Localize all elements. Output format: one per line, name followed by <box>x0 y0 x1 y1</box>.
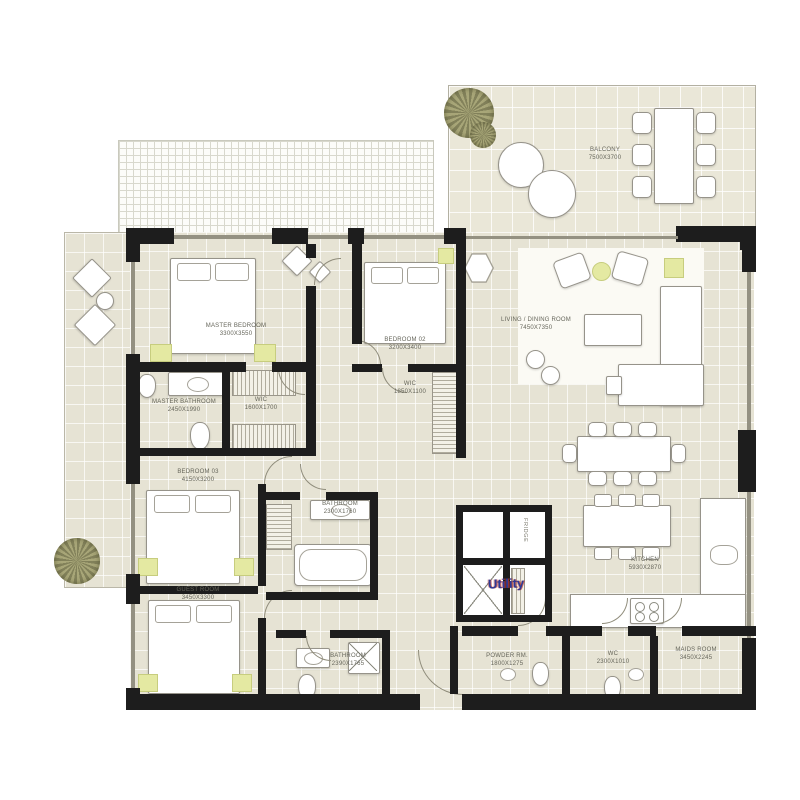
wall <box>628 626 656 636</box>
room-name: POWDER RM. <box>486 653 528 659</box>
chair <box>613 422 632 437</box>
nightstand <box>138 558 158 576</box>
wic-bedroom02-label: WIC 1850X1100 <box>384 380 436 396</box>
wall <box>545 505 552 622</box>
sofa-arm <box>606 376 622 395</box>
wall <box>126 354 140 484</box>
room-name: WIC <box>404 381 416 387</box>
window <box>308 235 348 239</box>
bathroom-lower-label: BATHROOM 2390X1765 <box>318 652 378 668</box>
room-dims: 7500X3700 <box>589 155 622 161</box>
nightstand <box>234 558 254 576</box>
dining-table <box>577 436 671 472</box>
chair <box>613 471 632 486</box>
master-bedroom-label: MASTER BEDROOM 3300X3550 <box>186 322 286 338</box>
balcony-label: BALCONY 7500X3700 <box>560 146 650 162</box>
window <box>747 272 751 430</box>
window <box>131 484 135 574</box>
pillow <box>155 605 191 623</box>
wall <box>348 228 364 244</box>
room-dims: 1850X1100 <box>394 389 426 395</box>
room-name: MAIDS ROOM <box>675 647 716 653</box>
vanity-counter <box>168 372 224 396</box>
chair <box>638 422 657 437</box>
room-name: BATHROOM <box>330 653 366 659</box>
wall <box>456 244 466 458</box>
guest-room-label: GUEST ROOM 3450X3300 <box>158 586 238 602</box>
floor-plan: FRIDGE Utility <box>0 0 800 800</box>
pillow <box>407 267 439 284</box>
wall <box>258 484 266 586</box>
coffee-table <box>584 314 642 346</box>
chair <box>638 471 657 486</box>
chair <box>696 144 716 166</box>
window-sliding-door <box>466 236 678 239</box>
nightstand <box>138 674 158 692</box>
wc-label: WC 2300X1010 <box>592 650 634 666</box>
bathtub-icon <box>294 544 372 586</box>
room-name: MASTER BEDROOM <box>206 323 266 329</box>
room-dims: 1800X1275 <box>491 661 524 667</box>
pouf <box>664 258 684 278</box>
bedroom02-label: BEDROOM 02 3200X3400 <box>362 336 448 352</box>
plant-icon <box>470 122 496 148</box>
fridge-label: FRIDGE <box>522 518 528 542</box>
room-dims: 3300X3550 <box>220 331 253 337</box>
pillow <box>215 263 249 281</box>
sink-icon <box>710 545 738 565</box>
chair <box>696 176 716 198</box>
stool <box>594 494 612 507</box>
wall <box>682 626 756 636</box>
wall <box>306 244 316 258</box>
sink-icon <box>628 668 644 681</box>
side-table <box>541 366 560 385</box>
pillow <box>154 495 190 513</box>
pillow <box>371 267 403 284</box>
window <box>174 235 272 239</box>
living-dining-label: LIVING / DINING ROOM 7450X7350 <box>488 316 584 332</box>
balcony-round-table <box>528 170 576 218</box>
room-dims: 3200X3400 <box>389 345 422 351</box>
room-dims: 2300X1010 <box>597 659 630 665</box>
room-dims: 3450X2245 <box>680 655 713 661</box>
wall <box>134 448 316 456</box>
room-dims: 3450X3300 <box>182 595 215 601</box>
wall <box>382 630 390 710</box>
wall <box>546 626 602 636</box>
bedroom03-bed <box>146 490 240 584</box>
side-table <box>526 350 545 369</box>
room-name: GUEST ROOM <box>177 587 220 593</box>
room-dims: 2390X1765 <box>332 661 365 667</box>
wall <box>266 592 378 600</box>
room-name: BATHROOM <box>322 501 358 507</box>
wall <box>126 244 140 262</box>
window <box>131 604 135 688</box>
window <box>747 492 751 638</box>
maids-room-label: MAIDS ROOM 3450X2245 <box>656 646 736 662</box>
utility-label: Utility <box>488 575 525 591</box>
wall <box>462 694 756 710</box>
wall <box>742 248 756 272</box>
linen-closet <box>266 504 292 550</box>
wall <box>738 430 756 492</box>
wall <box>444 228 466 244</box>
stool <box>618 494 636 507</box>
kitchen-island <box>583 505 671 547</box>
chair <box>632 176 652 198</box>
chair <box>588 471 607 486</box>
wall <box>134 362 246 372</box>
room-dims: 7450X7350 <box>520 325 553 331</box>
bathroom-upper-label: BATHROOM 2300X1760 <box>308 500 372 516</box>
chair <box>588 422 607 437</box>
bedroom03-label: BEDROOM 03 4150X3200 <box>156 468 240 484</box>
room-dims: 5930X2870 <box>629 565 662 571</box>
master-bed <box>170 258 256 354</box>
chair <box>696 112 716 134</box>
pillow <box>195 495 231 513</box>
master-bathroom-label: MASTER BATHROOM 2450X1990 <box>140 398 228 414</box>
wall <box>126 228 174 244</box>
room-name: WC <box>608 651 618 657</box>
wall <box>126 694 420 710</box>
toilet-icon <box>190 422 210 450</box>
wall <box>258 618 266 710</box>
wic-master-label: WIC 1600X1700 <box>238 396 284 412</box>
chair <box>632 112 652 134</box>
pouf <box>592 262 611 281</box>
wall <box>276 630 306 638</box>
room-name: BEDROOM 03 <box>177 469 218 475</box>
plant-icon <box>54 538 100 584</box>
room-name: BEDROOM 02 <box>384 337 425 343</box>
room-name: LIVING / DINING ROOM <box>501 317 571 323</box>
room-dims: 2300X1760 <box>324 509 357 515</box>
stool <box>642 494 660 507</box>
room-dims: 1600X1700 <box>245 405 278 411</box>
wall <box>462 626 518 636</box>
nightstand <box>254 344 276 362</box>
window <box>131 262 135 354</box>
wall <box>352 244 362 344</box>
wall <box>503 505 510 622</box>
pillow <box>177 263 211 281</box>
pillow <box>196 605 232 623</box>
window <box>364 235 444 239</box>
wall <box>352 364 382 372</box>
room-name: BALCONY <box>590 147 620 153</box>
sofa <box>618 364 704 406</box>
wall <box>272 228 308 244</box>
room-name: MASTER BATHROOM <box>152 399 216 405</box>
room-dims: 4150X3200 <box>182 477 215 483</box>
wall <box>740 226 756 250</box>
balcony-dining-table <box>654 108 694 204</box>
wall <box>330 630 388 638</box>
kitchen-label: KITCHEN 5930X2870 <box>608 556 682 572</box>
nightstand <box>438 248 454 264</box>
wall <box>676 226 744 242</box>
wall <box>562 636 570 710</box>
sink-icon <box>500 668 516 681</box>
wall <box>456 505 463 622</box>
chair <box>671 444 686 463</box>
wall <box>450 626 458 694</box>
nightstand <box>150 344 172 362</box>
room-dims: 2450X1990 <box>168 407 201 413</box>
pergola-canopy <box>118 140 434 233</box>
room-name: KITCHEN <box>631 557 659 563</box>
room-name: WIC <box>255 397 267 403</box>
nightstand <box>232 674 252 692</box>
guest-bed <box>148 600 240 694</box>
toilet-icon <box>138 374 156 398</box>
bedroom02-bed <box>364 262 446 344</box>
chair <box>562 444 577 463</box>
wall <box>326 492 376 500</box>
wall <box>306 286 316 456</box>
sink-icon <box>187 377 209 392</box>
wall <box>266 492 300 500</box>
powder-room-label: POWDER RM. 1800X1275 <box>476 652 538 668</box>
